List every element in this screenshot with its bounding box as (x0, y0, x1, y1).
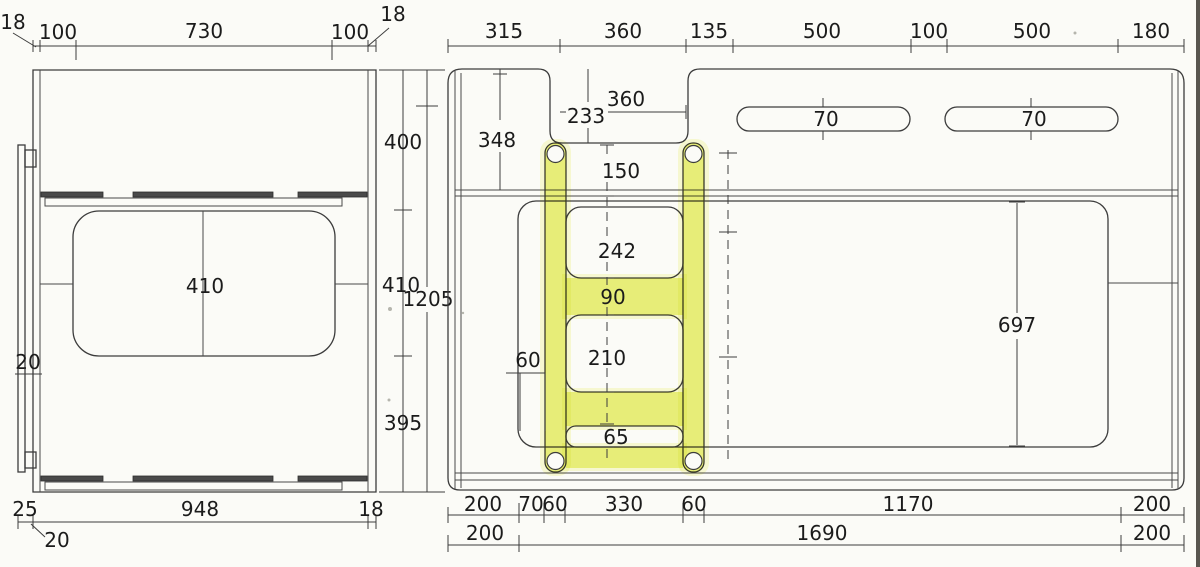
dim-slot-right-70: 70 (1021, 107, 1046, 131)
mid-platform (45, 198, 342, 206)
ladder-hole-top-left (547, 146, 564, 163)
side-view: 410 20 18 100 730 100 18 400 410 395 120… (0, 2, 453, 552)
dim-cutout-height: 410 (186, 274, 224, 298)
dim-60: 60 (515, 348, 540, 372)
ladder-hook-bottom (25, 452, 36, 468)
dim-242: 242 (598, 239, 636, 263)
dim-b1-70: 70 (518, 492, 543, 516)
ladder-hole-bottom-right (685, 453, 702, 470)
dim-side-100-left: 100 (39, 20, 77, 44)
side-top-dim-line (33, 40, 376, 60)
dim-front-180: 180 (1132, 19, 1170, 43)
scan-edge-strip (1196, 0, 1200, 567)
scan-artifacts (388, 0, 1200, 567)
dim-front-360: 360 (604, 19, 642, 43)
technical-drawing: 410 20 18 100 730 100 18 400 410 395 120… (0, 0, 1200, 567)
dim-ladder-bar-thickness: 20 (15, 350, 40, 374)
dim-front-315: 315 (485, 19, 523, 43)
dim-side-100-right: 100 (331, 20, 369, 44)
dim-notch-233: 233 (567, 104, 605, 128)
slot-center-ticks (823, 98, 1031, 140)
dim-210: 210 (588, 346, 626, 370)
dim-b2-1690: 1690 (797, 521, 848, 545)
dim-b2-200l: 200 (466, 521, 504, 545)
ladder-hook-top (25, 150, 36, 167)
dim-side-25: 25 (12, 497, 37, 521)
dim-notch-360: 360 (607, 87, 645, 111)
dim-b1-60r: 60 (681, 492, 706, 516)
dim-height-400: 400 (384, 130, 422, 154)
ladder-bar-side (18, 145, 25, 472)
dim-side-730: 730 (185, 19, 223, 43)
dim-side-20-leader: 20 (44, 528, 69, 552)
dim-150: 150 (602, 159, 640, 183)
dim-b2-200r: 200 (1133, 521, 1171, 545)
bottom-slat-2 (133, 476, 273, 481)
dim-front-500-left: 500 (803, 19, 841, 43)
dim-slot-left-70: 70 (813, 107, 838, 131)
dim-side-948: 948 (181, 497, 219, 521)
mid-slat-2 (133, 192, 273, 197)
dim-b1-200r: 200 (1133, 492, 1171, 516)
ladder-hole-top-right (685, 146, 702, 163)
dim-90: 90 (600, 285, 625, 309)
leader-20-bottom (31, 524, 45, 537)
bottom-slat-1 (41, 476, 103, 481)
dim-height-395: 395 (384, 411, 422, 435)
dim-side-18-topleft: 18 (0, 10, 25, 34)
dim-side-18-topright: 18 (380, 2, 405, 26)
drawing-canvas: 410 20 18 100 730 100 18 400 410 395 120… (0, 0, 1200, 567)
dim-side-18-bottom: 18 (358, 497, 383, 521)
dim-front-135: 135 (690, 19, 728, 43)
dim-b1-60l: 60 (542, 492, 567, 516)
bottom-slat-3 (298, 476, 367, 481)
dim-b1-200l: 200 (464, 492, 502, 516)
dim-front-100: 100 (910, 19, 948, 43)
mid-slat-1 (41, 192, 103, 197)
dim-65: 65 (603, 425, 628, 449)
dim-348: 348 (478, 128, 516, 152)
dim-60-line (506, 373, 545, 431)
front-right-edge-band (1172, 71, 1178, 489)
dim-front-500-right: 500 (1013, 19, 1051, 43)
bottom-platform (45, 482, 342, 490)
dim-b1-1170: 1170 (883, 492, 934, 516)
front-view: 70 70 315 360 135 500 100 500 180 348 23… (448, 19, 1184, 552)
front-left-edge-band (455, 71, 461, 489)
dim-b1-330: 330 (605, 492, 643, 516)
mid-slat-3 (298, 192, 367, 197)
dim-697: 697 (998, 313, 1036, 337)
ladder-hole-bottom-left (547, 453, 564, 470)
leader-18-topright (368, 28, 389, 46)
dim-overall-height: 1205 (403, 287, 454, 311)
